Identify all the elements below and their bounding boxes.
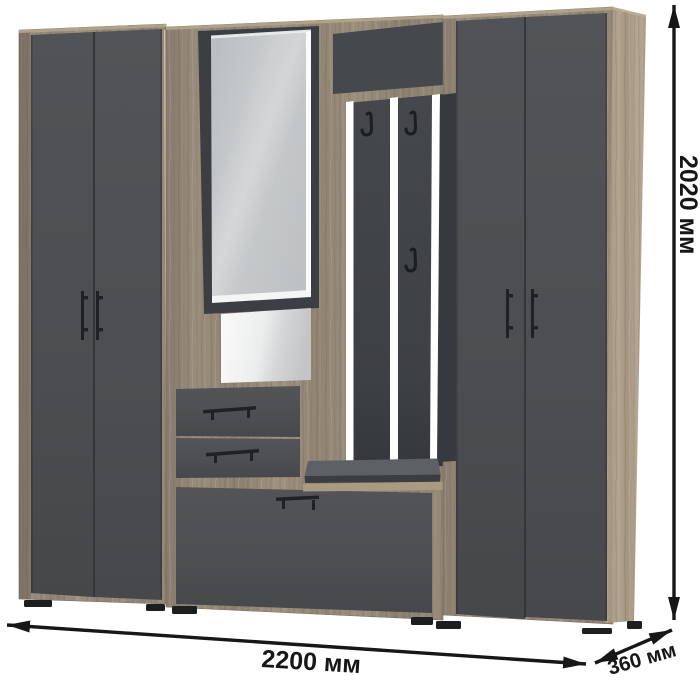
svg-text:2020 мм: 2020 мм <box>674 155 700 255</box>
